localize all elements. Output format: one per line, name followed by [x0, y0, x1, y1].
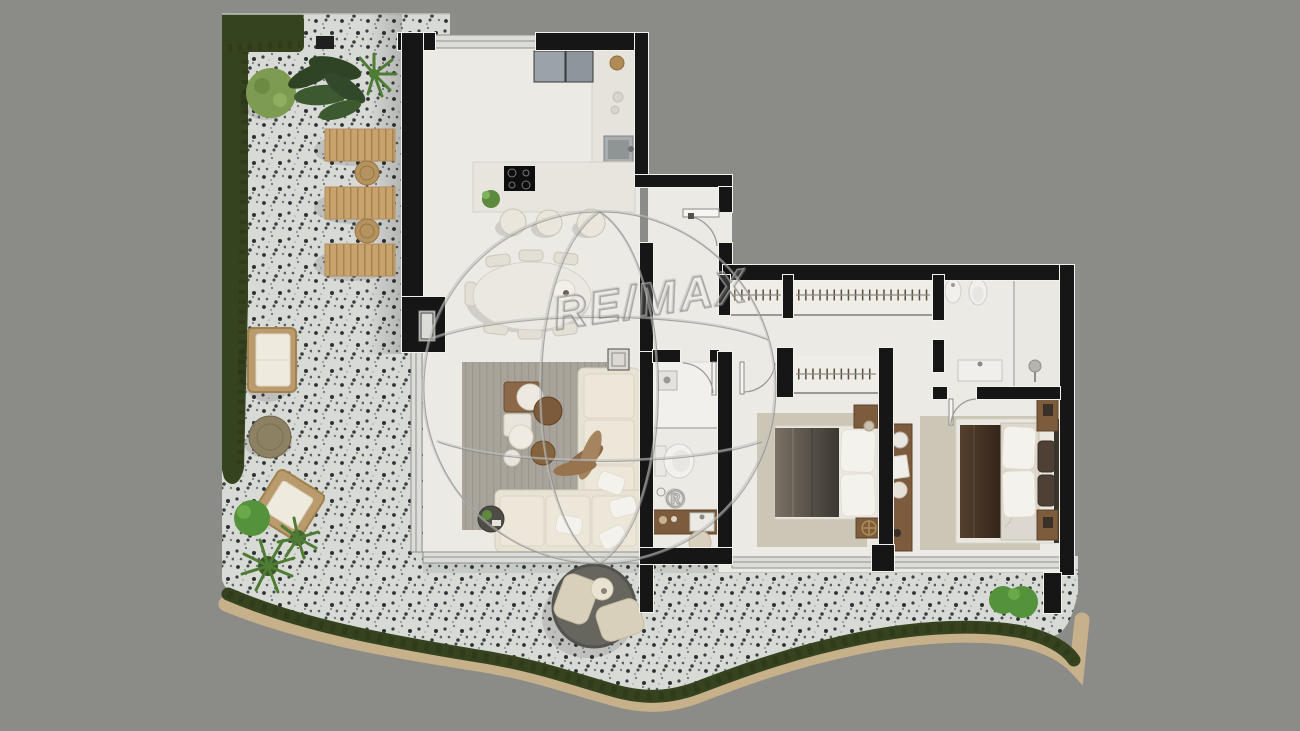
- tray-table-icon: [608, 349, 629, 370]
- bed-throw: [775, 428, 839, 517]
- wall-entry-north: [635, 175, 732, 187]
- sink-basin: [608, 140, 629, 159]
- nightstand-niche: [1043, 404, 1053, 416]
- faucet-icon: [628, 146, 634, 152]
- shrub-detail: [1008, 588, 1020, 600]
- toilet-seat: [973, 286, 984, 302]
- bed-runner-brown: [960, 425, 1002, 538]
- plate: [613, 92, 623, 102]
- sun-lounger-icon: [325, 244, 395, 276]
- bed-pillow: [840, 429, 875, 472]
- wall-masterbath-west-a: [933, 275, 944, 320]
- entry-door-opening: [719, 212, 732, 243]
- round-coffee-table-icon: [249, 416, 291, 458]
- wall-window-post: [872, 545, 894, 571]
- side-table-icon: [355, 161, 379, 185]
- bed-pillow: [1002, 470, 1036, 517]
- hallway-wardrobes: [730, 278, 933, 315]
- freezer-icon: [566, 51, 593, 82]
- table-lamp-icon: [864, 421, 874, 431]
- sofa-cushion: [584, 374, 634, 418]
- bedroom2-door-leaf: [740, 362, 744, 394]
- book: [492, 520, 501, 526]
- brass-bowl-icon: [610, 56, 624, 70]
- plant-detail: [482, 191, 490, 199]
- sun-lounger-icon: [325, 187, 395, 219]
- fridge-icon: [534, 51, 565, 82]
- accent-pillow: [1038, 441, 1055, 472]
- bar-stool-icon: [500, 209, 526, 235]
- sun-lounger-group: [314, 129, 395, 281]
- door-handle-icon: [688, 213, 694, 219]
- nightstand-niche: [1043, 517, 1053, 528]
- living-room: [462, 349, 643, 552]
- floor-plan-screenshot: RE/MAX ®: [0, 0, 1300, 731]
- desk-decor: [893, 529, 901, 537]
- toilet-icon: [655, 444, 694, 478]
- planter-box: [316, 36, 334, 49]
- accent-pillow: [1038, 475, 1055, 506]
- table-lamp-icon: [862, 521, 876, 535]
- bed-pillow: [1002, 426, 1036, 470]
- wood-round-table: [534, 397, 562, 425]
- wall-masterbath-south-a: [933, 387, 947, 399]
- floor-plan-render: RE/MAX ®: [0, 0, 1300, 731]
- seat: [672, 450, 690, 472]
- palm-center: [369, 69, 379, 79]
- vanity-decor: [659, 516, 667, 524]
- round-table: [509, 425, 533, 449]
- bed-pillow: [840, 473, 875, 516]
- side-table-icon: [355, 219, 379, 243]
- shrub-icon: [234, 500, 270, 536]
- wall-top-right: [536, 33, 648, 50]
- wall-masterbath-west-b: [933, 340, 944, 372]
- faucet-icon: [700, 515, 705, 520]
- wall-entry-east-a: [719, 187, 732, 212]
- wall-bedrooms-divider: [879, 348, 893, 560]
- mirror-icon: [892, 432, 908, 448]
- vanity-decor: [671, 516, 677, 522]
- shower-column-icon: [1029, 360, 1041, 372]
- wall-east: [1060, 265, 1074, 575]
- shower-drain: [664, 377, 671, 384]
- bidet-tap: [951, 283, 955, 287]
- wall-west-column: [402, 33, 423, 297]
- moss-bush-icon: [246, 68, 296, 118]
- daybed-button: [601, 588, 607, 594]
- bidet-icon: [945, 279, 961, 303]
- moss-detail: [254, 78, 270, 94]
- wall-wing-north: [723, 265, 1074, 280]
- wall-masterbath-south-b: [977, 387, 1060, 399]
- moss-detail: [273, 93, 287, 107]
- wall-closet2-west: [777, 348, 793, 397]
- faucet-icon: [978, 362, 983, 367]
- cooktop-icon: [504, 166, 535, 191]
- wall-east-post: [1044, 573, 1061, 613]
- sofa-cushion: [500, 496, 544, 546]
- wall-kitchen-east: [635, 33, 648, 175]
- wall-closet-divider: [783, 275, 793, 318]
- shrub-detail: [237, 505, 251, 519]
- dining-chair-icon: [519, 250, 543, 261]
- plate: [611, 106, 619, 114]
- sun-lounger-icon: [325, 129, 395, 161]
